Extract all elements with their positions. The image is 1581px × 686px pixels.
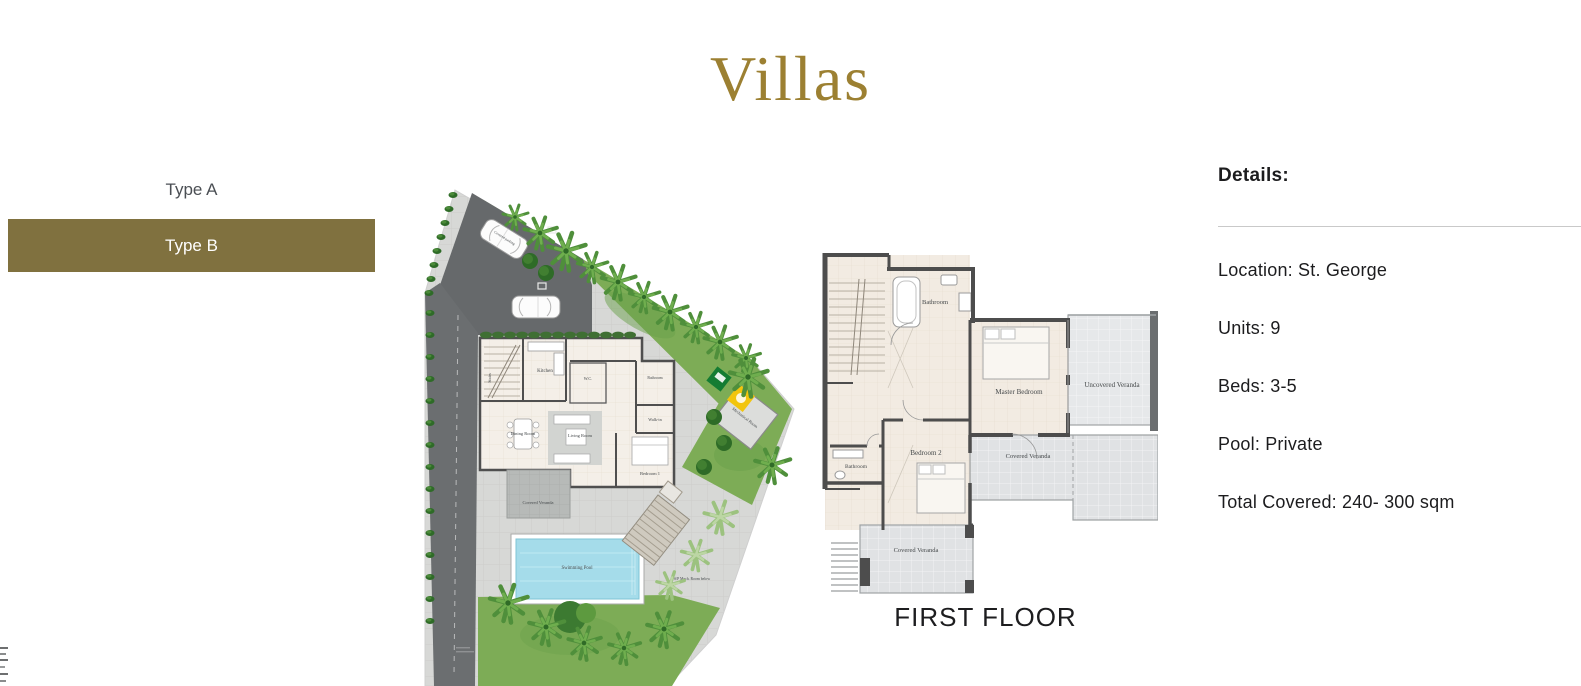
ff-bathroom-label: Bathroom xyxy=(922,299,948,306)
site-plan-image: Covered parking xyxy=(420,165,800,686)
swimming-pool: Swimming Pool xyxy=(511,534,644,604)
detail-total-covered: Total Covered: 240- 300 sqm xyxy=(1218,492,1581,513)
veranda-pillar xyxy=(1150,311,1158,431)
stairs-label: Stairs xyxy=(487,373,492,383)
small-bath-vanity xyxy=(833,450,863,458)
page-edge-artifact xyxy=(0,645,12,686)
parked-car xyxy=(512,296,560,318)
covered-veranda-label: Covered Veranda xyxy=(522,500,553,505)
house-veranda: Covered Veranda xyxy=(507,470,570,518)
ff-bedroom2-label: Bedroom 2 xyxy=(910,449,942,457)
living-label: Living Room xyxy=(568,433,593,438)
detail-location: Location: St. George xyxy=(1218,260,1581,281)
small-bath-toilet xyxy=(835,471,845,479)
type-a-tab[interactable]: Type A xyxy=(8,165,375,215)
uncovered-veranda-floor xyxy=(1068,315,1156,425)
ff-uncovered-veranda-label: Uncovered Veranda xyxy=(1084,381,1140,389)
ff-master-label: Master Bedroom xyxy=(995,388,1043,396)
first-floor-caption: FIRST FLOOR xyxy=(813,602,1158,633)
details-panel: Details: Location: St. George Units: 9 B… xyxy=(1218,165,1581,513)
bedroom1-label: Bedroom 1 xyxy=(640,471,660,476)
wc-label: W.C. xyxy=(584,376,592,381)
details-heading: Details: xyxy=(1218,165,1581,187)
villas-page: Villas Type A Type B xyxy=(0,0,1581,686)
details-divider xyxy=(1218,226,1581,227)
page-title: Villas xyxy=(0,42,1581,116)
pergola-slats xyxy=(831,543,858,591)
first-floor-plan-image: Bathroom Master Bedroom Uncovered Verand… xyxy=(813,253,1158,603)
master-bed xyxy=(983,327,1049,379)
pool-label: Swimming Pool xyxy=(561,566,593,571)
bathroom-label: Bathroom xyxy=(647,376,662,380)
toilet xyxy=(941,275,957,285)
covered-veranda-bottom-floor xyxy=(860,525,973,593)
bedroom2-bed xyxy=(917,463,965,513)
type-b-tab[interactable]: Type B xyxy=(8,219,375,272)
ff-covered-veranda-bottom-label: Covered Veranda xyxy=(894,547,939,554)
covered-veranda-right-floor xyxy=(970,435,1158,520)
walkin-label: Walk-in xyxy=(648,417,662,422)
detail-pool: Pool: Private xyxy=(1218,434,1581,455)
detail-beds: Beds: 3-5 xyxy=(1218,376,1581,397)
dining-label: Dining Room xyxy=(511,431,536,436)
vanity xyxy=(959,293,971,311)
kitchen-label: Kitchen xyxy=(537,369,553,374)
bathtub xyxy=(893,277,920,327)
ff-covered-veranda-right-label: Covered Veranda xyxy=(1006,453,1051,460)
ff-bathroom-left-label: Bathroom xyxy=(845,464,868,470)
type-selector: Type A Type B xyxy=(0,165,420,272)
detail-units: Units: 9 xyxy=(1218,318,1581,339)
